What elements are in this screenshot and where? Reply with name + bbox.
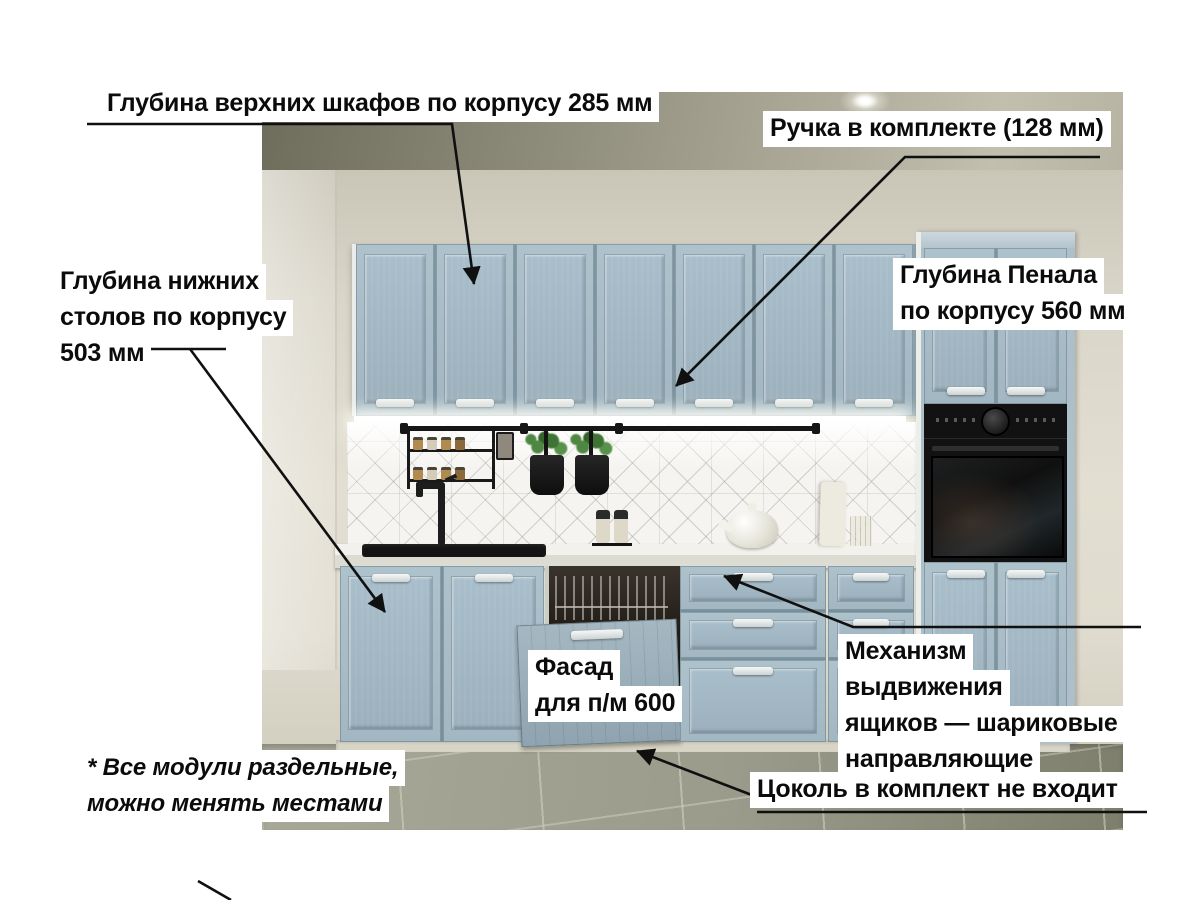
label-text: * Все модули раздельные, <box>80 750 405 786</box>
spice-jar <box>455 437 465 450</box>
upper-cabinet-door <box>516 244 594 416</box>
label-text: Глубина нижних <box>53 264 266 300</box>
oven-buttons <box>936 418 976 422</box>
oven-knob <box>983 409 1008 434</box>
hanging-jar <box>496 432 514 460</box>
faucet-spout <box>416 482 423 497</box>
door-handle <box>1007 570 1045 578</box>
label-penal-depth: Глубина Пенала по корпусу 560 мм <box>893 258 1132 330</box>
penal-top-cap <box>921 232 1075 248</box>
label-text: Глубина верхних шкафов по корпусу 285 мм <box>100 86 659 122</box>
label-plinth-note: Цоколь в комплект не входит <box>750 772 1125 808</box>
label-handle-included: Ручка в комплекте (128 мм) <box>763 111 1111 147</box>
label-text: 503 мм <box>53 336 151 372</box>
door-panel <box>684 255 744 403</box>
label-modules-note: * Все модули раздельные, можно менять ме… <box>80 750 405 822</box>
annotated-kitchen-diagram: Глубина верхних шкафов по корпусу 285 мм… <box>0 0 1200 900</box>
label-text: по корпусу 560 мм <box>893 294 1132 330</box>
upper-cabinets <box>352 244 916 416</box>
drawer-front <box>680 612 826 658</box>
drawer-panel <box>690 669 816 733</box>
drawer-handle <box>853 573 889 581</box>
door-handle <box>376 399 414 407</box>
label-drawer-mechanism: Механизм выдвижения ящиков — шариковые н… <box>838 634 1125 778</box>
label-text: Фасад <box>528 650 620 686</box>
door-handle <box>775 399 813 407</box>
upper-cabinet-door <box>436 244 514 416</box>
door-handle <box>695 399 733 407</box>
oven-door-glass <box>931 456 1064 558</box>
drawer-front <box>680 566 826 610</box>
label-lower-cabinet-depth: Глубина нижних столов по корпусу 503 мм <box>53 264 293 372</box>
label-text: Ручка в комплекте (128 мм) <box>763 111 1111 147</box>
spice-jar <box>413 437 423 450</box>
label-text: можно менять местами <box>80 786 389 822</box>
label-text: для п/м 600 <box>528 686 682 722</box>
label-text: Механизм <box>838 634 973 670</box>
sink <box>362 544 546 557</box>
door-handle <box>855 399 893 407</box>
facade-handle <box>571 629 623 640</box>
teapot <box>726 510 778 548</box>
cutting-board <box>819 482 847 547</box>
base-cabinets <box>340 566 544 742</box>
left-wall <box>262 170 337 670</box>
door-panel <box>605 255 665 403</box>
built-in-oven <box>924 404 1067 562</box>
spice-jar <box>413 467 423 480</box>
spice-jar <box>441 437 451 450</box>
door-handle <box>456 399 494 407</box>
upper-cabinet-door <box>675 244 753 416</box>
door-panel <box>349 577 432 729</box>
label-text: Глубина Пенала <box>893 258 1104 294</box>
upper-cabinet-door <box>755 244 833 416</box>
hanging-pot <box>575 455 609 495</box>
drawer-handle <box>733 573 773 581</box>
base-cabinet-door <box>340 566 441 742</box>
drawer-stack <box>680 566 826 742</box>
door-handle <box>475 574 513 582</box>
label-text: Цоколь в комплект не входит <box>750 772 1125 808</box>
label-text: выдвижения <box>838 670 1010 706</box>
drawer-front <box>680 660 826 742</box>
drawer-front <box>828 566 914 610</box>
label-dishwasher-facade: Фасад для п/м 600 <box>528 650 682 722</box>
oven-handle <box>932 446 1059 451</box>
door-handle <box>536 399 574 407</box>
label-upper-cabinet-depth: Глубина верхних шкафов по корпусу 285 мм <box>100 86 659 122</box>
upper-cabinet-door <box>356 244 434 416</box>
door-handle <box>616 399 654 407</box>
faucet-riser <box>438 482 445 546</box>
label-text: ящиков — шариковые <box>838 706 1125 742</box>
drawer-handle <box>853 619 889 627</box>
door-panel <box>525 255 585 403</box>
door-panel <box>764 255 824 403</box>
glass-cup <box>850 516 872 546</box>
spice-shelf <box>407 431 495 489</box>
door-panel <box>365 255 425 403</box>
spice-jar <box>427 467 437 480</box>
spice-jar <box>427 437 437 450</box>
upper-cabinet-door <box>596 244 674 416</box>
drawer-handle <box>733 619 773 627</box>
hanging-pot <box>530 455 564 495</box>
door-handle <box>947 387 985 395</box>
label-text: столов по корпусу <box>53 300 293 336</box>
door-handle <box>947 570 985 578</box>
spice-shakers <box>592 504 634 546</box>
door-handle <box>1007 387 1045 395</box>
drawer-handle <box>733 667 773 675</box>
dishwasher-rack <box>555 576 668 620</box>
oven-buttons <box>1016 418 1056 422</box>
spice-jar <box>455 467 465 480</box>
oven-control-panel <box>924 404 1067 439</box>
door-handle <box>372 574 410 582</box>
door-panel <box>445 255 505 403</box>
